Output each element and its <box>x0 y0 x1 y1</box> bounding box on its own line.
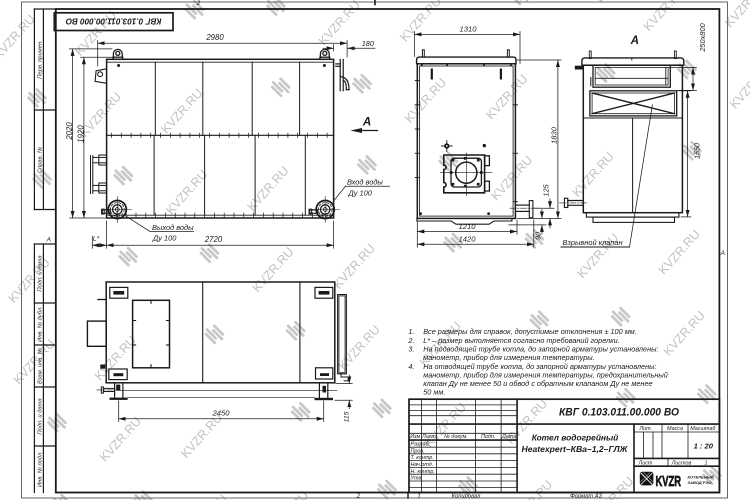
svg-text:Справ. №: Справ. № <box>38 147 44 173</box>
svg-text:2.: 2. <box>407 336 414 345</box>
svg-text:125: 125 <box>541 184 550 197</box>
svg-text:Котел водогрейный: Котел водогрейный <box>532 433 619 443</box>
svg-text:клапан Ду не менее 50 и обвод: клапан Ду не менее 50 и обвод с обратным… <box>423 379 652 388</box>
svg-text:2980: 2980 <box>205 33 224 42</box>
svg-text:1: 1 <box>705 460 708 466</box>
svg-text:Подп. и дата: Подп. и дата <box>38 398 44 435</box>
svg-text:Лист: Лист <box>638 460 653 466</box>
svg-text:А: А <box>720 250 725 257</box>
svg-text:Пров.: Пров. <box>411 448 425 454</box>
svg-text:Листов: Листов <box>671 460 692 466</box>
svg-text:1550: 1550 <box>693 143 702 159</box>
svg-text:А: А <box>46 237 51 244</box>
svg-text:1310: 1310 <box>460 24 478 33</box>
svg-text:Нач.отд.: Нач.отд. <box>411 462 434 468</box>
svg-text:Взам. инв. №: Взам. инв. № <box>38 348 44 384</box>
svg-text:Дата: Дата <box>501 434 516 440</box>
svg-text:КВГ 0.103.011.00.000 ВО: КВГ 0.103.011.00.000 ВО <box>65 16 161 25</box>
svg-text:90: 90 <box>533 232 542 240</box>
svg-text:L* – размер выполняется соглас: L* – размер выполняется согласно требова… <box>423 336 619 345</box>
svg-text:Н. контр.: Н. контр. <box>411 469 435 475</box>
svg-text:1920: 1920 <box>76 125 85 143</box>
svg-text:Масса: Масса <box>667 426 683 432</box>
svg-text:1830: 1830 <box>550 126 559 144</box>
svg-text:Ду 100: Ду 100 <box>348 188 373 197</box>
svg-text:Т. контр.: Т. контр. <box>411 455 434 461</box>
svg-text:Лист: Лист <box>421 434 436 440</box>
svg-text:Лит.: Лит. <box>638 426 652 432</box>
svg-text:КВГ 0.103.011.00.000 ВО: КВГ 0.103.011.00.000 ВО <box>559 407 680 419</box>
svg-text:2720: 2720 <box>204 235 223 244</box>
svg-text:Выход воды: Выход воды <box>152 223 194 232</box>
svg-text:1 : 20: 1 : 20 <box>694 442 714 451</box>
svg-text:1: 1 <box>417 494 420 500</box>
svg-text:1210: 1210 <box>459 222 477 231</box>
svg-text:Ду 100: Ду 100 <box>152 234 177 243</box>
svg-text:Формат А3: Формат А3 <box>570 494 602 500</box>
svg-text:Heatexpert–КВа–1,2–ГЛЖ: Heatexpert–КВа–1,2–ГЛЖ <box>521 444 628 454</box>
svg-text:Масштаб: Масштаб <box>690 426 716 432</box>
svg-text:3.: 3. <box>408 345 414 354</box>
svg-text:№ докум.: № докум. <box>444 434 468 440</box>
svg-text:КОТЕЛЬНЫЙ: КОТЕЛЬНЫЙ <box>688 475 714 480</box>
svg-text:Копировал: Копировал <box>452 494 482 500</box>
svg-text:ЗАВОД РЭО: ЗАВОД РЭО <box>688 480 713 485</box>
svg-text:L*: L* <box>93 236 100 243</box>
svg-text:4.: 4. <box>408 362 414 371</box>
svg-text:Перв. примен.: Перв. примен. <box>38 40 44 79</box>
svg-text:250х800: 250х800 <box>698 22 707 52</box>
svg-text:А: А <box>630 34 639 47</box>
svg-text:50 мм.: 50 мм. <box>423 388 445 397</box>
svg-text:2020: 2020 <box>65 122 74 141</box>
svg-text:180: 180 <box>362 39 374 48</box>
svg-text:KVZR: KVZR <box>656 474 682 490</box>
svg-text:Инв. № дубл.: Инв. № дубл. <box>38 306 44 342</box>
svg-text:А: А <box>362 116 371 129</box>
svg-text:Подп.: Подп. <box>481 434 495 440</box>
svg-text:115: 115 <box>343 411 350 422</box>
svg-text:Взрывной клапан: Взрывной клапан <box>563 238 623 247</box>
svg-text:Подп. и дата: Подп. и дата <box>38 255 44 292</box>
svg-text:Изм: Изм <box>410 434 420 440</box>
svg-text:1420: 1420 <box>459 234 477 243</box>
svg-text:Инв. № подл.: Инв. № подл. <box>38 451 44 487</box>
svg-text:манометр, прибор для измерения: манометр, прибор для измерения температу… <box>423 353 595 362</box>
svg-text:Разраб.: Разраб. <box>411 442 431 448</box>
svg-text:Утв.: Утв. <box>410 476 423 482</box>
svg-text:2: 2 <box>196 1 201 7</box>
svg-text:Вход воды: Вход воды <box>347 177 383 186</box>
svg-text:2: 2 <box>356 494 361 500</box>
svg-text:2450: 2450 <box>212 409 231 418</box>
